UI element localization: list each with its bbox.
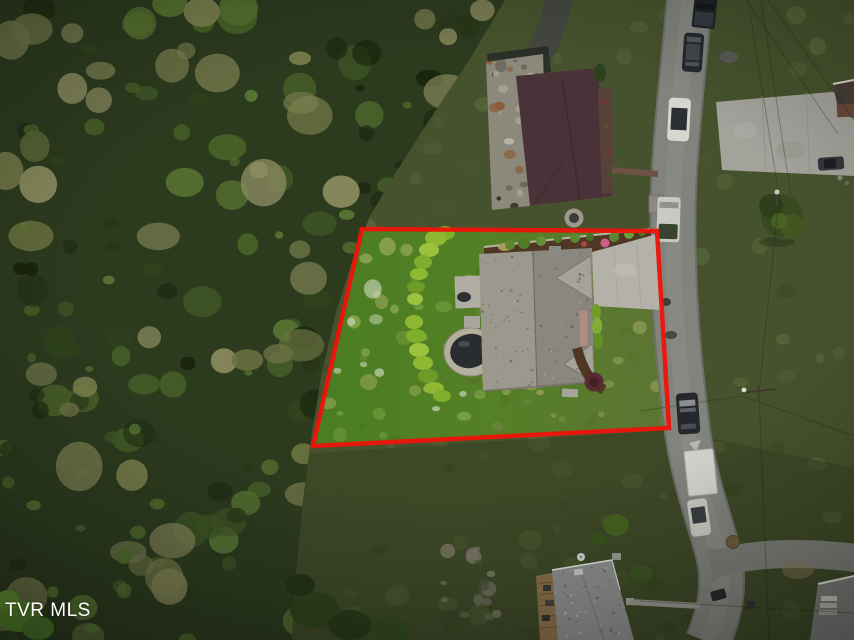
shrub xyxy=(536,236,546,246)
texture-blob xyxy=(237,233,258,255)
texture-blob xyxy=(568,618,571,620)
texture-blob xyxy=(618,631,620,633)
subject-house xyxy=(479,246,596,397)
texture-blob xyxy=(544,373,547,375)
texture-blob xyxy=(570,594,572,596)
texture-blob xyxy=(355,101,384,129)
water-highlight xyxy=(458,341,470,347)
shrub xyxy=(600,99,607,106)
texture-blob xyxy=(579,632,582,634)
texture-blob xyxy=(564,584,567,587)
suv-windshield xyxy=(679,399,695,406)
car-glass xyxy=(691,506,707,524)
texture-blob xyxy=(61,23,83,43)
texture-blob xyxy=(786,6,806,24)
texture-blob xyxy=(601,568,603,569)
concrete-mottle xyxy=(733,122,757,138)
car-windshield xyxy=(687,37,701,43)
debris xyxy=(838,176,843,181)
texture-blob xyxy=(617,595,619,596)
texture-blob xyxy=(474,560,483,566)
texture-blob xyxy=(85,366,93,372)
texture-blob xyxy=(432,406,440,411)
texture-blob xyxy=(250,162,269,179)
texture-blob xyxy=(502,278,503,279)
texture-blob xyxy=(81,45,96,55)
texture-blob xyxy=(604,567,607,569)
texture-blob xyxy=(73,377,98,398)
hedge-blob xyxy=(419,243,439,257)
texture-blob xyxy=(772,441,785,453)
texture-blob xyxy=(563,572,565,573)
texture-blob xyxy=(112,346,131,366)
texture-blob xyxy=(287,96,333,135)
texture-blob xyxy=(573,625,575,626)
texture-blob xyxy=(612,612,614,614)
texture-blob xyxy=(519,294,522,296)
texture-blob xyxy=(124,7,157,40)
texture-blob xyxy=(423,143,443,156)
shrub xyxy=(609,232,619,242)
texture-blob xyxy=(481,303,483,305)
texture-blob xyxy=(619,325,629,334)
texture-blob xyxy=(488,305,490,307)
texture-blob xyxy=(180,357,195,370)
texture-blob xyxy=(568,601,569,602)
texture-blob xyxy=(440,581,447,585)
texture-blob xyxy=(579,273,582,276)
texture-blob xyxy=(157,284,178,300)
texture-blob xyxy=(619,605,621,607)
texture-blob xyxy=(609,580,611,582)
texture-blob xyxy=(195,54,240,93)
hedge-blob xyxy=(410,268,428,280)
texture-blob xyxy=(333,427,347,442)
texture-blob xyxy=(130,526,146,539)
texture-blob xyxy=(778,370,796,383)
texture-blob xyxy=(615,633,618,635)
step xyxy=(821,596,837,601)
bush xyxy=(591,533,607,545)
texture-blob xyxy=(352,40,381,66)
texture-blob xyxy=(336,411,343,416)
texture-blob xyxy=(568,279,570,280)
texture-blob xyxy=(150,433,161,444)
concrete-mottle xyxy=(776,141,804,159)
texture-blob xyxy=(116,460,148,491)
pink-flowering-shrub xyxy=(601,239,610,248)
texture-blob xyxy=(590,272,591,273)
texture-blob xyxy=(414,9,435,30)
texture-blob xyxy=(390,305,398,314)
texture-blob xyxy=(243,462,254,472)
texture-blob xyxy=(553,54,563,64)
texture-blob xyxy=(360,374,377,390)
texture-blob xyxy=(563,592,565,594)
texture-blob xyxy=(514,369,516,371)
texture-blob xyxy=(518,265,519,266)
texture-blob xyxy=(616,49,631,65)
texture-blob xyxy=(545,384,547,385)
shrub xyxy=(505,240,515,250)
hedge-blob xyxy=(405,315,423,329)
texture-blob xyxy=(581,306,583,307)
texture-blob xyxy=(540,325,543,327)
texture-blob xyxy=(530,369,533,372)
texture-blob xyxy=(733,378,748,387)
car-glass-roof xyxy=(670,108,687,131)
texture-blob xyxy=(520,182,528,188)
texture-blob xyxy=(540,276,542,277)
texture-blob xyxy=(584,354,586,355)
texture-blob xyxy=(290,262,327,295)
texture-blob xyxy=(480,579,489,585)
truck-bed xyxy=(694,11,714,27)
texture-blob xyxy=(833,6,848,18)
texture-blob xyxy=(137,223,180,251)
texture-blob xyxy=(355,85,366,92)
texture-blob xyxy=(501,290,503,292)
texture-blob xyxy=(586,581,587,582)
texture-blob xyxy=(470,0,495,21)
hedge-blob xyxy=(593,333,603,349)
texture-blob xyxy=(599,590,601,592)
rooftop-unit xyxy=(612,553,621,560)
texture-blob xyxy=(373,408,386,420)
hedge-blob xyxy=(409,343,429,357)
texture-blob xyxy=(482,598,492,605)
texture-blob xyxy=(579,611,581,612)
texture-blob xyxy=(27,353,36,363)
texture-blob xyxy=(359,254,372,264)
texture-blob xyxy=(550,351,552,353)
texture-blob xyxy=(552,377,554,379)
shrub xyxy=(586,233,594,241)
texture-blob xyxy=(565,608,566,609)
watermark-tvr-mls: TVR MLS xyxy=(5,600,91,622)
texture-blob xyxy=(550,353,552,355)
texture-blob xyxy=(576,621,579,623)
skylight xyxy=(574,568,584,575)
texture-blob xyxy=(302,211,336,236)
texture-blob xyxy=(48,339,80,359)
texture-blob xyxy=(56,442,103,491)
shrub xyxy=(603,124,609,130)
texture-blob xyxy=(24,124,39,134)
white-van-dark-top xyxy=(656,197,681,243)
texture-blob xyxy=(58,302,74,317)
texture-blob xyxy=(326,37,347,59)
texture-blob xyxy=(559,416,566,422)
tree-shadow xyxy=(759,237,795,247)
texture-blob xyxy=(432,197,456,216)
texture-blob xyxy=(47,586,59,597)
car-glass xyxy=(824,159,837,169)
hedge-blob xyxy=(592,317,602,335)
texture-blob xyxy=(2,476,14,488)
texture-blob xyxy=(125,83,140,93)
bush xyxy=(629,565,653,583)
texture-blob xyxy=(495,373,497,374)
texture-blob xyxy=(580,257,581,258)
small-pad xyxy=(464,316,480,328)
texture-blob xyxy=(492,421,503,431)
texture-blob xyxy=(166,168,204,197)
texture-blob xyxy=(827,359,844,372)
texture-blob xyxy=(519,376,520,377)
hedge-blob xyxy=(433,390,451,402)
debris xyxy=(845,181,849,185)
suv-rear-glass xyxy=(681,423,696,429)
texture-blob xyxy=(481,310,484,313)
texture-blob xyxy=(631,634,632,636)
texture-blob xyxy=(543,340,545,342)
texture-blob xyxy=(591,567,592,568)
texture-blob xyxy=(495,348,497,350)
road-patch xyxy=(720,51,738,63)
texture-blob xyxy=(592,567,594,568)
texture-blob xyxy=(523,399,532,405)
texture-blob xyxy=(128,374,160,395)
texture-blob xyxy=(490,296,492,298)
texture-blob xyxy=(473,391,481,396)
van-windshield xyxy=(659,202,678,209)
texture-blob xyxy=(231,349,263,370)
texture-blob xyxy=(549,350,551,351)
texture-blob xyxy=(106,242,120,250)
texture-blob xyxy=(485,613,496,620)
texture-blob xyxy=(578,278,581,281)
texture-blob xyxy=(20,131,50,162)
texture-blob xyxy=(400,244,412,256)
texture-blob xyxy=(440,544,455,559)
texture-blob xyxy=(439,28,457,45)
texture-blob xyxy=(498,85,508,93)
texture-blob xyxy=(492,314,494,316)
texture-blob xyxy=(613,634,614,635)
texture-blob xyxy=(566,595,569,598)
texture-blob xyxy=(495,59,507,72)
street-lamp xyxy=(742,388,747,393)
texture-blob xyxy=(580,253,582,255)
texture-blob xyxy=(466,547,479,561)
texture-blob xyxy=(521,64,527,70)
trailer-box xyxy=(684,449,718,497)
texture-blob xyxy=(76,525,86,532)
texture-blob xyxy=(160,371,187,397)
texture-blob xyxy=(553,349,556,351)
texture-blob xyxy=(564,612,567,615)
shed xyxy=(837,104,854,118)
texture-blob xyxy=(504,138,515,145)
texture-blob xyxy=(511,256,514,258)
burgundy-shrub-center xyxy=(589,377,599,387)
texture-blob xyxy=(628,352,639,362)
texture-blob xyxy=(582,274,585,276)
texture-blob xyxy=(515,166,523,174)
dark-car-on-concrete-pad xyxy=(818,156,845,171)
texture-blob xyxy=(495,259,497,261)
bare-patch xyxy=(782,561,814,579)
texture-blob xyxy=(333,368,341,374)
red-flowering-shrub xyxy=(581,241,587,247)
hedge-blob xyxy=(407,293,423,305)
texture-blob xyxy=(57,73,87,104)
texture-blob xyxy=(555,361,558,364)
texture-blob xyxy=(435,301,452,312)
texture-blob xyxy=(138,326,162,348)
texture-blob xyxy=(536,389,544,395)
texture-blob xyxy=(576,368,579,370)
cypress-tree xyxy=(594,64,606,82)
texture-blob xyxy=(575,615,578,618)
texture-blob xyxy=(528,385,530,387)
texture-blob xyxy=(573,637,575,638)
texture-blob xyxy=(361,348,370,357)
texture-blob xyxy=(553,365,554,366)
texture-blob xyxy=(570,571,572,572)
concrete-mottle xyxy=(613,263,637,277)
texture-blob xyxy=(789,62,807,77)
dark-car xyxy=(682,32,705,72)
texture-blob xyxy=(0,441,17,458)
van-dark-top xyxy=(658,224,678,240)
concrete-pad xyxy=(454,276,481,309)
texture-blob xyxy=(776,284,796,299)
texture-blob xyxy=(610,587,612,589)
texture-blob xyxy=(359,423,366,429)
texture-blob xyxy=(578,302,581,304)
texture-blob xyxy=(245,90,258,102)
texture-blob xyxy=(617,589,619,590)
texture-blob xyxy=(244,370,253,375)
texture-blob xyxy=(504,310,506,312)
texture-blob xyxy=(8,221,53,251)
texture-blob xyxy=(19,222,29,230)
texture-blob xyxy=(527,328,529,330)
texture-blob xyxy=(501,395,509,402)
texture-blob xyxy=(613,357,624,365)
texture-blob xyxy=(497,196,502,200)
texture-blob xyxy=(535,296,537,298)
texture-blob xyxy=(323,176,360,208)
texture-blob xyxy=(497,111,501,115)
texture-blob xyxy=(409,385,421,396)
texture-blob xyxy=(507,67,514,72)
texture-blob xyxy=(560,324,562,326)
texture-blob xyxy=(575,313,578,316)
texture-blob xyxy=(482,339,484,341)
texture-blob xyxy=(521,378,522,379)
texture-blob xyxy=(514,310,516,312)
texture-blob xyxy=(190,94,210,106)
texture-blob xyxy=(489,362,491,363)
texture-blob xyxy=(360,356,368,361)
texture-blob xyxy=(104,431,121,443)
texture-blob xyxy=(484,346,485,347)
texture-blob xyxy=(507,316,509,318)
texture-blob xyxy=(573,378,574,379)
texture-blob xyxy=(183,286,221,317)
texture-blob xyxy=(84,624,99,633)
texture-blob xyxy=(581,584,583,586)
step xyxy=(820,603,837,608)
texture-blob xyxy=(521,312,523,313)
texture-blob xyxy=(495,354,497,355)
texture-blob xyxy=(460,612,469,618)
hedge-blob xyxy=(406,329,426,343)
texture-blob xyxy=(509,320,511,321)
texture-blob xyxy=(149,523,195,559)
texture-blob xyxy=(581,287,582,288)
texture-blob xyxy=(496,381,498,382)
satellite-dish-arm xyxy=(580,556,583,559)
tree-blob xyxy=(328,610,372,640)
texture-blob xyxy=(457,412,471,421)
texture-blob xyxy=(459,391,466,397)
texture-blob xyxy=(84,119,104,136)
dark-pickup-truck xyxy=(691,0,717,29)
texture-blob xyxy=(490,321,492,323)
texture-blob xyxy=(582,620,583,621)
hedge-blob xyxy=(418,369,438,383)
texture-blob xyxy=(86,62,116,80)
texture-blob xyxy=(63,239,78,254)
texture-blob xyxy=(554,592,556,594)
aerial-photo-canvas xyxy=(0,0,854,640)
texture-blob xyxy=(555,268,558,270)
texture-blob xyxy=(369,314,383,324)
texture-blob xyxy=(513,59,517,62)
deck-item xyxy=(542,615,550,621)
tree-canopy-highlight xyxy=(771,213,787,229)
texture-blob xyxy=(59,403,79,417)
texture-blob xyxy=(174,124,191,140)
bush xyxy=(647,579,663,591)
manhole-cover xyxy=(727,536,740,549)
texture-blob xyxy=(531,382,534,384)
white-sedan xyxy=(667,97,691,141)
texture-blob xyxy=(150,499,165,510)
texture-blob xyxy=(289,52,311,66)
texture-blob xyxy=(527,349,529,350)
texture-blob xyxy=(570,249,572,251)
deck-item xyxy=(543,585,551,591)
texture-blob xyxy=(563,373,565,374)
texture-blob xyxy=(517,300,520,302)
rear-stoop xyxy=(562,389,578,398)
texture-blob xyxy=(129,424,141,435)
texture-blob xyxy=(433,117,444,127)
texture-blob xyxy=(49,156,65,166)
texture-blob xyxy=(515,351,517,353)
texture-blob xyxy=(29,389,45,402)
texture-blob xyxy=(441,597,448,602)
texture-blob xyxy=(227,508,246,524)
texture-blob xyxy=(103,218,117,227)
texture-blob xyxy=(583,585,586,588)
street-lamp xyxy=(775,190,780,195)
texture-blob xyxy=(502,375,503,376)
texture-blob xyxy=(359,125,375,141)
texture-blob xyxy=(32,401,49,419)
texture-blob xyxy=(473,594,483,605)
bush xyxy=(603,514,629,536)
shrub xyxy=(570,233,580,243)
dark-suv xyxy=(676,392,701,434)
texture-blob xyxy=(208,134,246,160)
texture-blob xyxy=(485,263,487,264)
